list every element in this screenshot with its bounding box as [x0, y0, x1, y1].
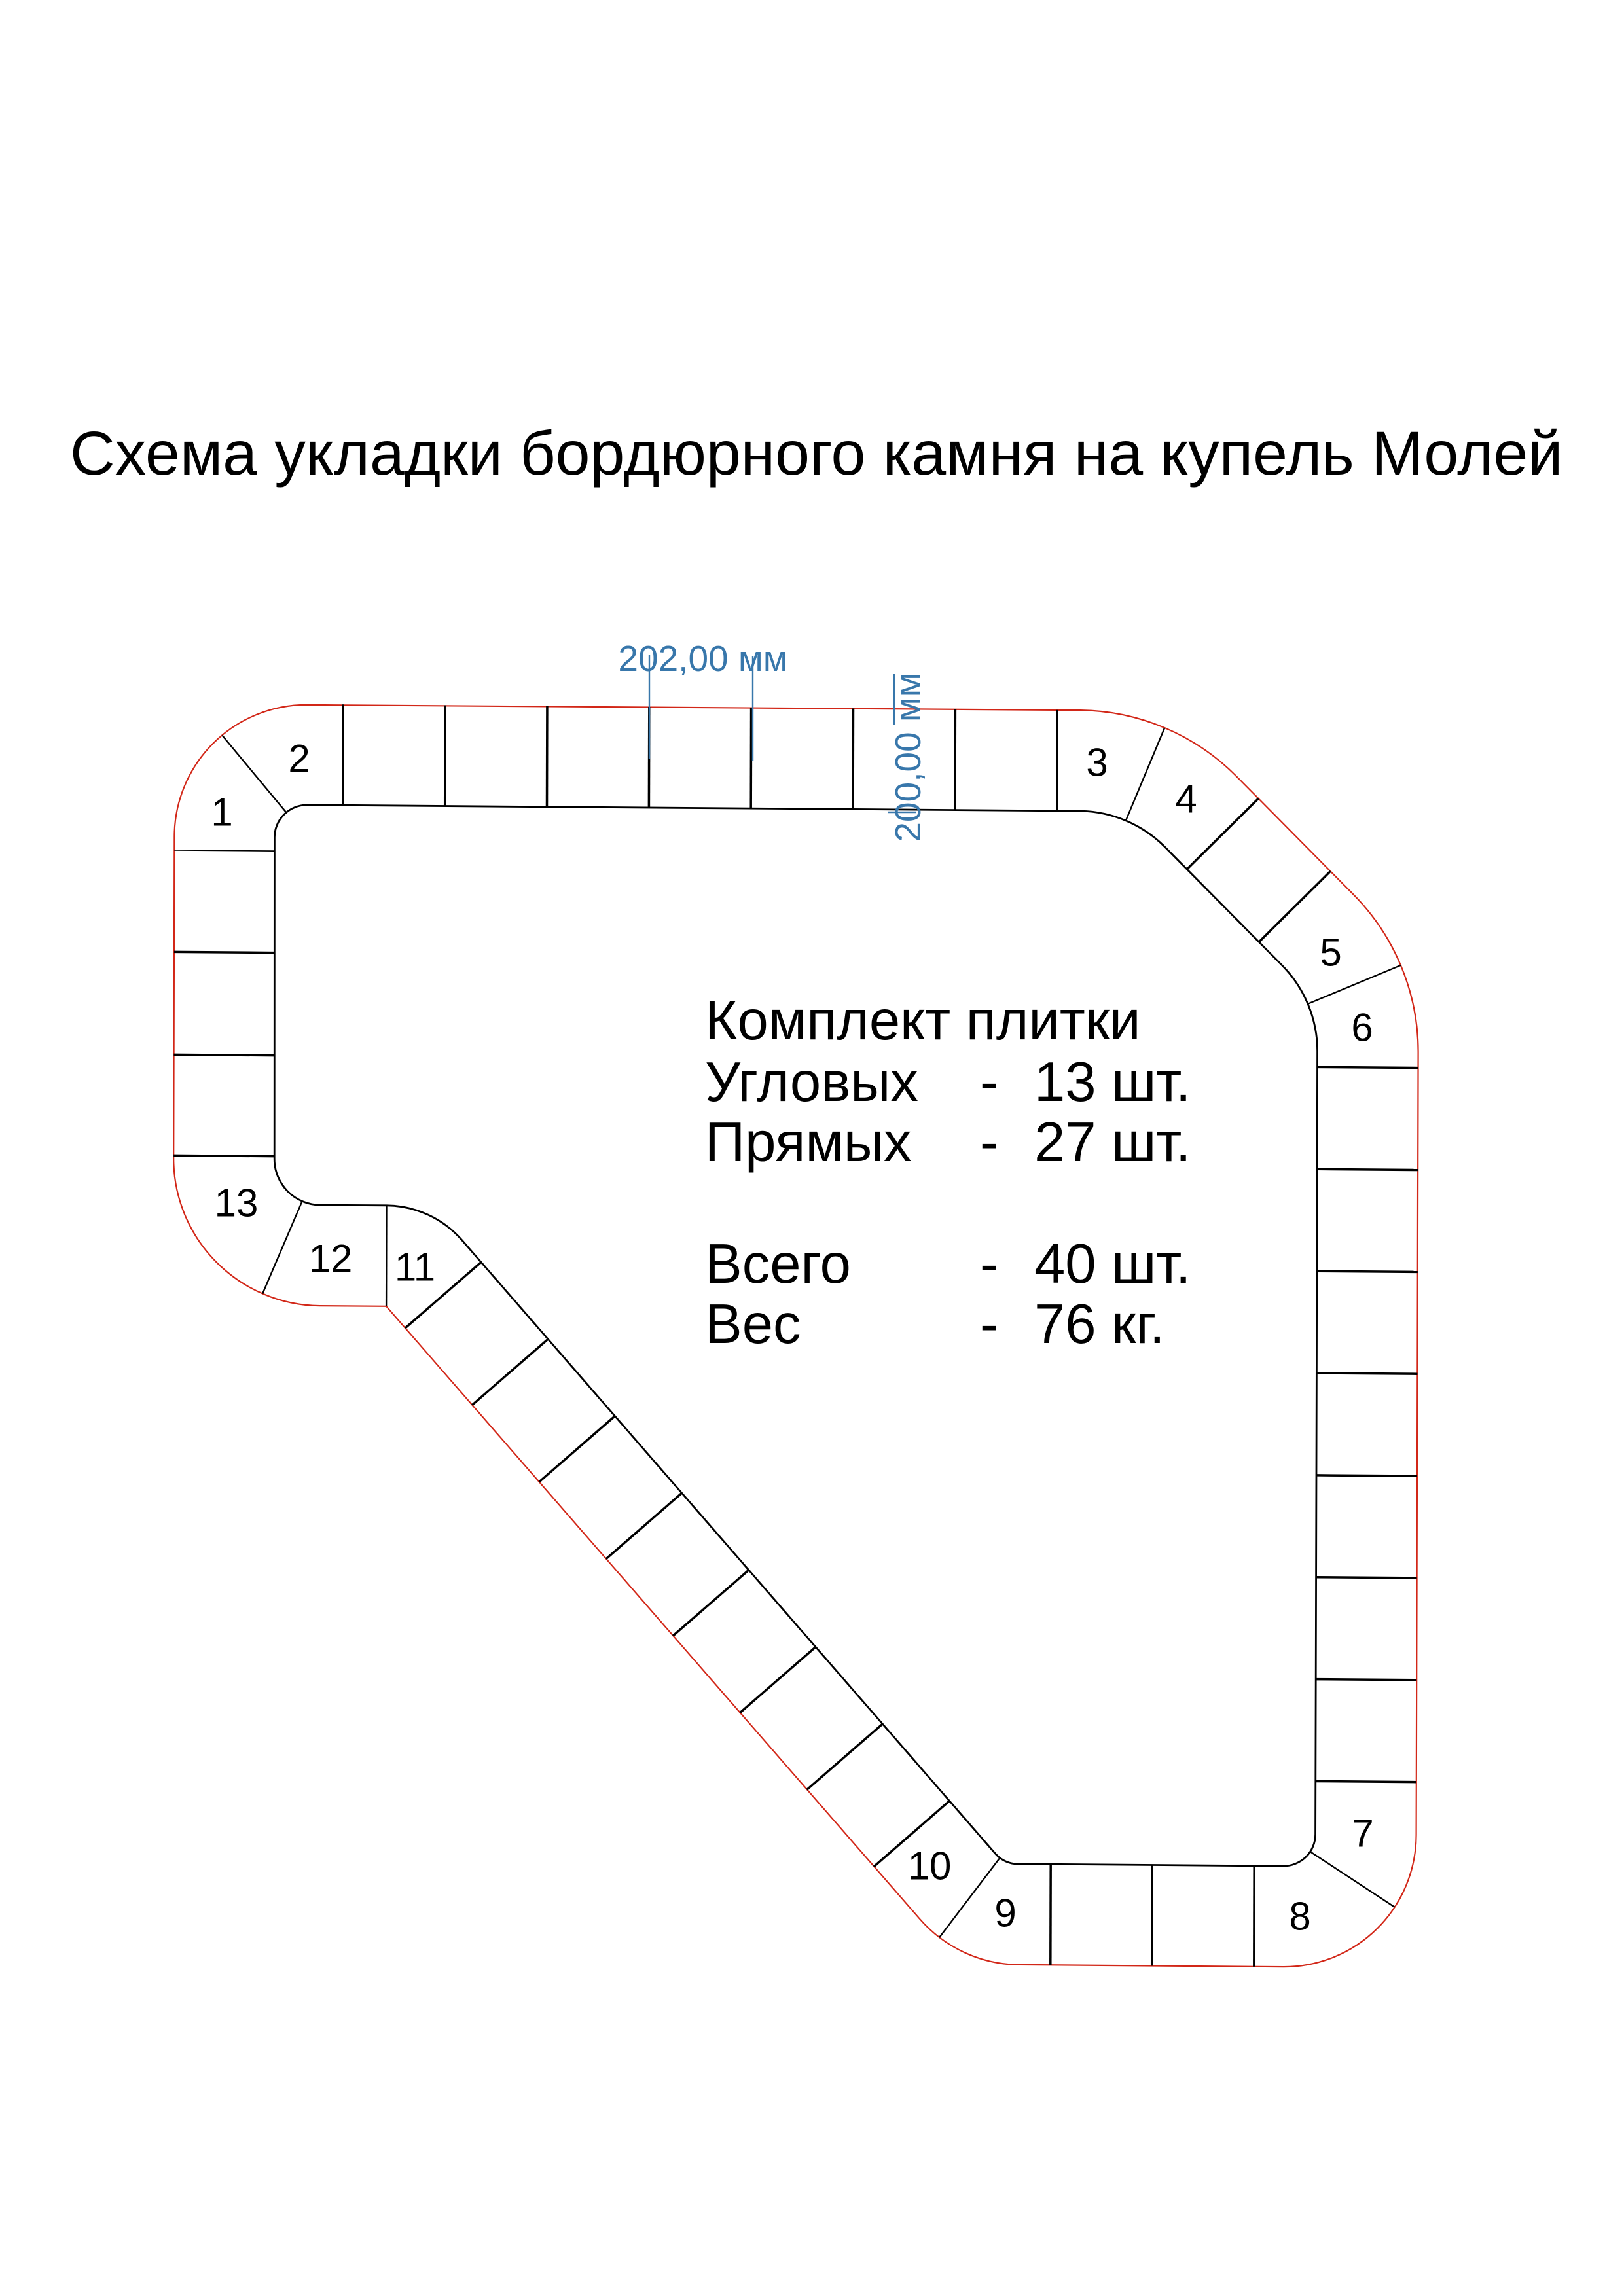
svg-text:Прямых: Прямых — [705, 1111, 911, 1174]
svg-text:9: 9 — [994, 1892, 1016, 1935]
svg-text:200,00 мм: 200,00 мм — [888, 672, 928, 842]
svg-text:Комплект плитки: Комплект плитки — [705, 990, 1141, 1052]
svg-text:202,00 мм: 202,00 мм — [618, 638, 787, 679]
svg-text:-: - — [980, 1233, 998, 1295]
svg-text:1: 1 — [211, 791, 232, 834]
svg-text:Угловых: Угловых — [705, 1051, 918, 1113]
svg-text:2: 2 — [288, 737, 310, 781]
svg-text:5: 5 — [1320, 931, 1341, 975]
svg-text:6: 6 — [1351, 1006, 1373, 1050]
svg-text:Вес: Вес — [705, 1293, 801, 1355]
svg-text:8: 8 — [1289, 1895, 1310, 1939]
svg-text:10: 10 — [908, 1844, 952, 1888]
svg-text:3: 3 — [1086, 741, 1108, 785]
svg-text:13 шт.: 13 шт. — [1034, 1051, 1191, 1113]
svg-text:13: 13 — [215, 1181, 259, 1225]
svg-text:Схема укладки бордюрного камня: Схема укладки бордюрного камня на купель… — [70, 419, 1562, 488]
svg-text:-: - — [980, 1051, 998, 1113]
svg-text:27 шт.: 27 шт. — [1034, 1111, 1191, 1174]
svg-text:-: - — [980, 1293, 998, 1355]
svg-text:4: 4 — [1175, 778, 1197, 821]
svg-text:76 кг.: 76 кг. — [1034, 1293, 1165, 1355]
svg-text:40 шт.: 40 шт. — [1034, 1233, 1191, 1295]
svg-text:-: - — [980, 1111, 998, 1174]
svg-text:7: 7 — [1352, 1812, 1373, 1856]
svg-text:12: 12 — [309, 1237, 353, 1281]
svg-text:Всего: Всего — [705, 1233, 851, 1295]
svg-text:11: 11 — [395, 1246, 435, 1289]
